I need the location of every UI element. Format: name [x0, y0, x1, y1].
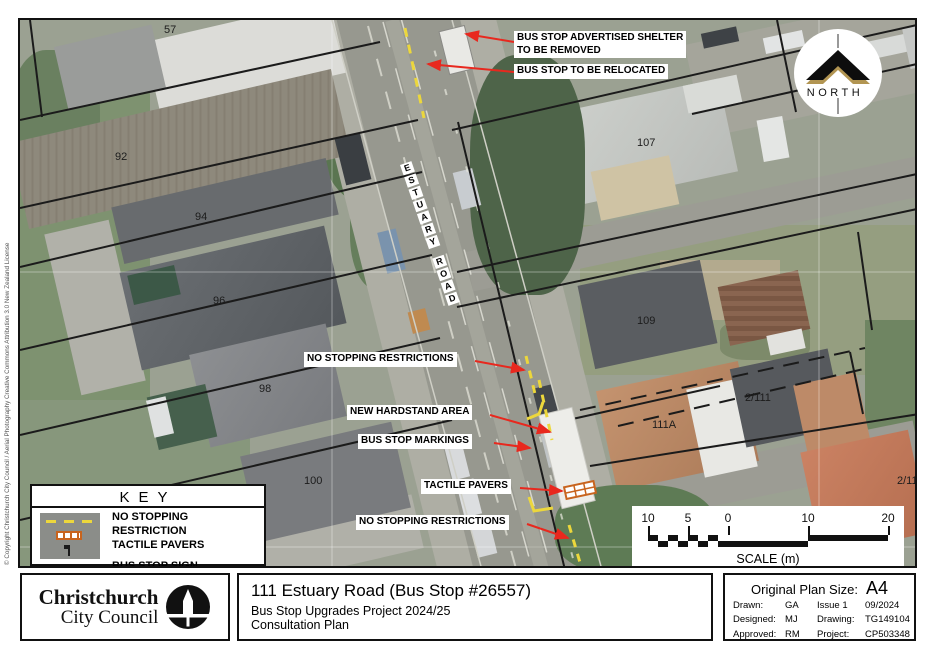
key-legend: KEY NO STOPPING RESTRICTION TACTILE PAVE… [30, 484, 266, 566]
parcel-number: 92 [115, 151, 127, 163]
key-title: KEY [32, 486, 264, 508]
parcel-number: 109 [637, 315, 655, 327]
project-number: CP503348 [865, 628, 910, 642]
plan-size-label: Original Plan Size: [751, 582, 858, 597]
annotation-no-stopping-1: NO STOPPING RESTRICTIONS [304, 352, 457, 367]
scale-tick-mark [648, 526, 650, 535]
org-name-line1: Christchurch [39, 586, 159, 608]
aerial-map: 57 92 94 96 98 100 107 109 111A 2/111 2/… [18, 18, 917, 568]
tactile-paver-icon [56, 531, 82, 540]
scale-tick-mark [728, 526, 730, 535]
plan-subtitle-type: Consultation Plan [251, 618, 699, 632]
plan-info-block: Original Plan Size: A4 Drawn: GA Issue 1… [723, 573, 916, 641]
copyright-text: © Copyright Christchurch City Council / … [4, 243, 11, 565]
plan-page: © Copyright Christchurch City Council / … [0, 0, 934, 661]
scale-tick-mark [888, 526, 890, 535]
scale-checker-row [648, 541, 728, 547]
issue-label: Issue 1 [817, 599, 865, 613]
annotation-bus-stop-relocated: BUS STOP TO BE RELOCATED [514, 64, 668, 79]
plan-subtitle-project: Bus Stop Upgrades Project 2024/25 [251, 604, 699, 618]
scale-solid-bar [808, 535, 888, 541]
bus-stop-sign-icon [64, 545, 69, 549]
no-stopping-dash-icon [82, 520, 92, 523]
plan-info-row: Approved: RM Project: CP503348 [733, 628, 906, 642]
designed-label: Designed: [733, 613, 785, 627]
annotation-shelter-removed: BUS STOP ADVERTISED SHELTER TO BE REMOVE… [514, 31, 686, 58]
drawn-value: GA [785, 599, 817, 613]
annotation-new-hardstand: NEW HARDSTAND AREA [347, 405, 472, 420]
approved-value: RM [785, 628, 817, 642]
designed-value: MJ [785, 613, 817, 627]
north-label: NORTH [807, 87, 863, 99]
parcel-number: 111A [652, 419, 676, 431]
project-label: Project: [817, 628, 865, 642]
annotation-bus-stop-markings: BUS STOP MARKINGS [358, 434, 472, 449]
parcel-number: 100 [304, 475, 322, 487]
parcel-number: 57 [164, 24, 176, 36]
annotation-tactile-pavers: TACTILE PAVERS [421, 479, 511, 494]
annotation-arrow [466, 34, 514, 42]
north-arrow-icon: NORTH [793, 28, 883, 118]
parcel-number: 2/111 [745, 392, 771, 404]
parcel-number: 94 [195, 211, 207, 223]
approved-label: Approved: [733, 628, 785, 642]
parcel-number: 107 [637, 137, 655, 149]
plan-info-row: Designed: MJ Drawing: TG149104 [733, 613, 906, 627]
parcel-number: 98 [259, 383, 271, 395]
scale-tick: 0 [725, 511, 732, 525]
scale-tick: 20 [881, 511, 894, 525]
parcel-number: 96 [213, 295, 225, 307]
no-stopping-dash-icon [46, 520, 56, 523]
drawn-label: Drawn: [733, 599, 785, 613]
scale-solid-bar [728, 541, 808, 547]
scale-units-label: SCALE (m) [632, 552, 904, 566]
no-stopping-dash-icon [64, 520, 74, 523]
plan-info-row: Drawn: GA Issue 1 09/2024 [733, 599, 906, 613]
council-logo-box: Christchurch City Council [20, 573, 230, 641]
key-item-tactile-pavers: TACTILE PAVERS [112, 539, 264, 553]
org-name-line2: City Council [39, 608, 159, 628]
plan-title: 111 Estuary Road (Bus Stop #26557) [251, 581, 699, 601]
parcel-number: 2/11 [897, 475, 917, 487]
scale-tick: 5 [685, 511, 692, 525]
scale-tick-mark [688, 526, 690, 535]
key-body: NO STOPPING RESTRICTION TACTILE PAVERS B… [32, 508, 264, 564]
scale-tick: 10 [801, 511, 814, 525]
issue-date: 09/2024 [865, 599, 906, 613]
drawing-label: Drawing: [817, 613, 865, 627]
key-swatch [40, 513, 100, 559]
annotation-no-stopping-2: NO STOPPING RESTRICTIONS [356, 515, 509, 530]
council-cathedral-logo-icon [165, 584, 211, 630]
key-item-bus-stop-sign: BUS STOP SIGN [112, 560, 264, 568]
plan-size-value: A4 [866, 578, 888, 599]
scale-tick-mark [808, 526, 810, 535]
drawing-number: TG149104 [865, 613, 910, 627]
key-item-no-stopping: NO STOPPING RESTRICTION [112, 511, 264, 539]
scale-tick: 10 [641, 511, 654, 525]
scale-bar: 10 5 0 10 20 SCALE (m) [632, 506, 904, 568]
title-block: 111 Estuary Road (Bus Stop #26557) Bus S… [237, 573, 713, 641]
